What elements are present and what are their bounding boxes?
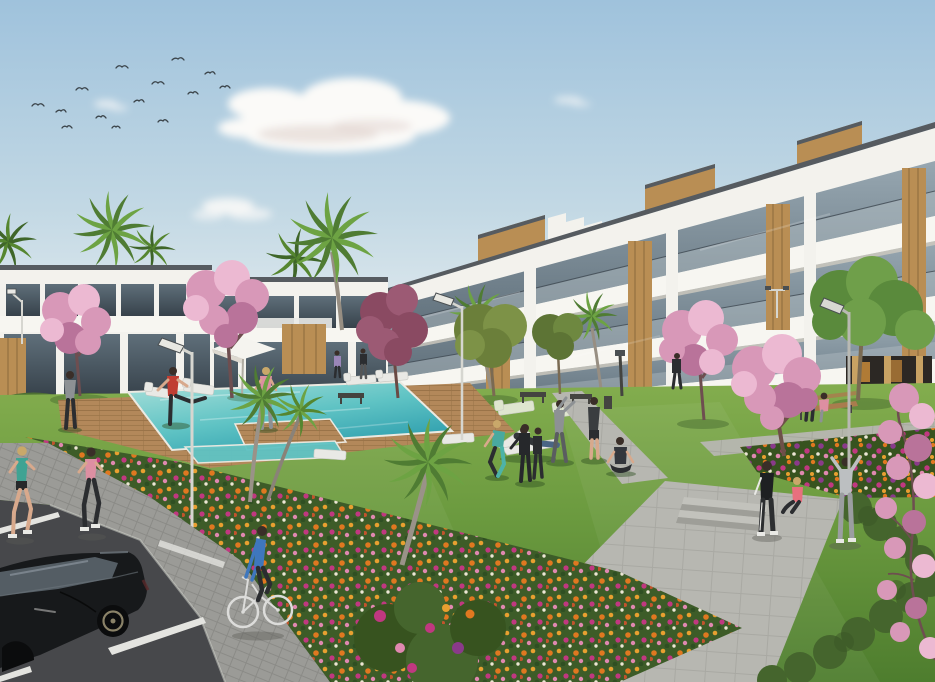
facade-pilaster [666, 213, 678, 405]
render-canvas: Photorealistic render of a modern white … [0, 0, 935, 682]
waste-bin [604, 396, 612, 409]
facade-wood-panel [628, 241, 652, 400]
left-building-upper-glazing [6, 284, 208, 316]
architectural-render-scene: Photorealistic render of a modern white … [0, 0, 935, 682]
